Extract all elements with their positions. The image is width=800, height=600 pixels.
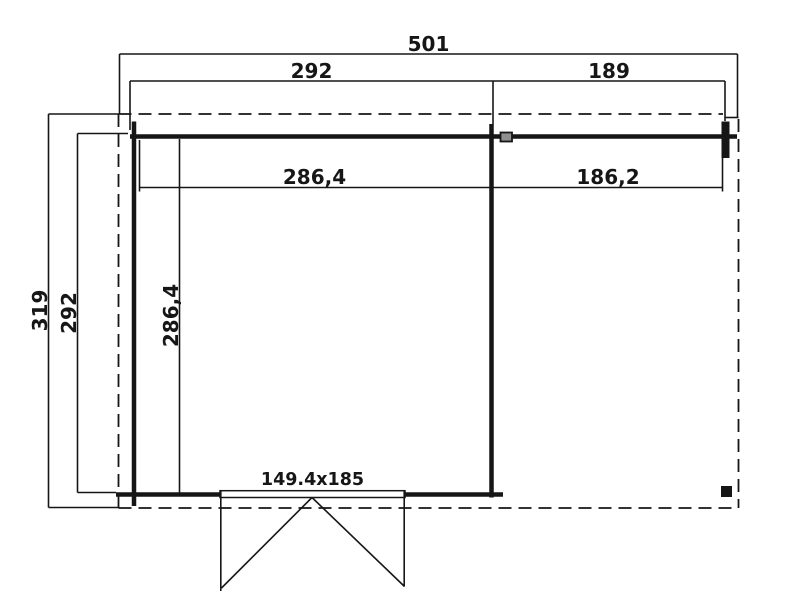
- door-leaf-left-swing: [222, 498, 313, 589]
- roof-overhang-outline: [119, 114, 739, 508]
- label-cabin-inner-depth: 286,4: [159, 284, 183, 347]
- label-overall-width: 501: [408, 32, 450, 56]
- canopy-corner-post-bottom: [721, 486, 732, 497]
- label-cabin-depth: 292: [57, 292, 81, 334]
- wall-joint-marker: [501, 133, 513, 142]
- label-door-size: 149.4x185: [261, 470, 364, 490]
- floor-plan-drawing: 501 292 189 286,4 186,2 319 292 286,4 14…: [0, 0, 800, 600]
- label-cabin-inner-width: 286,4: [283, 165, 346, 189]
- label-annex-width: 189: [588, 59, 630, 83]
- dimension-lines: [49, 54, 739, 508]
- label-annex-inner-width: 186,2: [576, 165, 639, 189]
- floor-plan-canvas: 501 292 189 286,4 186,2 319 292 286,4 14…: [0, 0, 800, 600]
- label-overall-depth: 319: [28, 290, 52, 332]
- double-door: [220, 491, 405, 592]
- walls: [116, 122, 737, 507]
- door-leaf-right-swing: [312, 498, 405, 587]
- door-frame: [220, 491, 405, 498]
- label-cabin-width: 292: [291, 59, 333, 83]
